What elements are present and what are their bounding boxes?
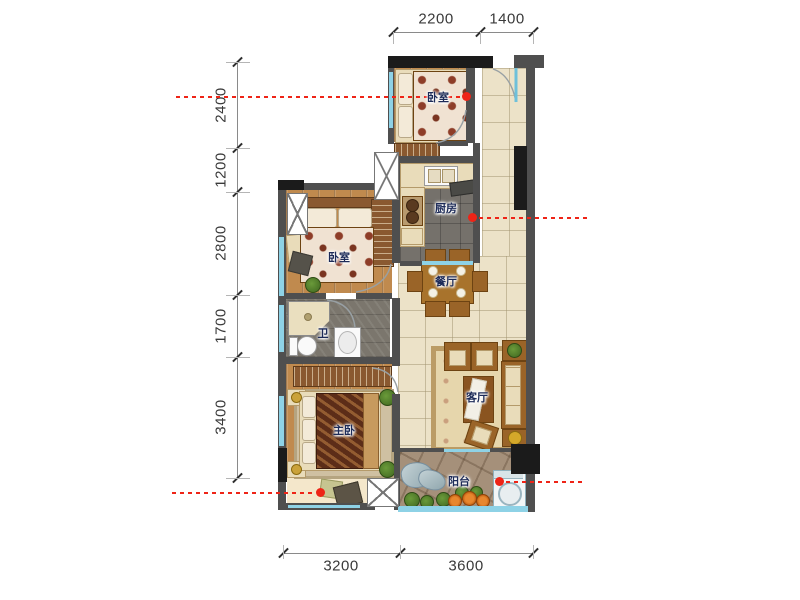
label-bedroom-mid: 卧室 [328,249,350,265]
red-guide-line [506,481,586,483]
red-guide-line [172,492,314,494]
red-guide-dot [468,213,477,222]
red-guide-dot [462,92,471,101]
label-master-bedroom: 主卧 [333,422,355,438]
entry-door-arc [493,69,516,102]
door-arcs-layer [0,0,800,600]
floor-plan-canvas: 2200 1400 2400 1200 2800 1700 3400 3200 … [0,0,800,600]
label-dining-room: 餐厅 [435,273,457,289]
bedroom-mid-door-arc [356,264,391,292]
master-door-arc [373,368,398,392]
red-guide-line [176,96,466,98]
bathroom-door-arc [327,300,355,327]
label-bathroom: 卫 [318,325,329,341]
label-kitchen: 厨房 [435,200,457,216]
red-guide-dot [495,477,504,486]
label-balcony: 阳台 [448,473,470,489]
label-bedroom-top: 卧室 [427,89,449,105]
red-guide-dot [316,488,325,497]
red-guide-line [479,217,587,219]
label-living-room: 客厅 [466,389,488,405]
bedroom-top-door-arc [436,110,466,143]
